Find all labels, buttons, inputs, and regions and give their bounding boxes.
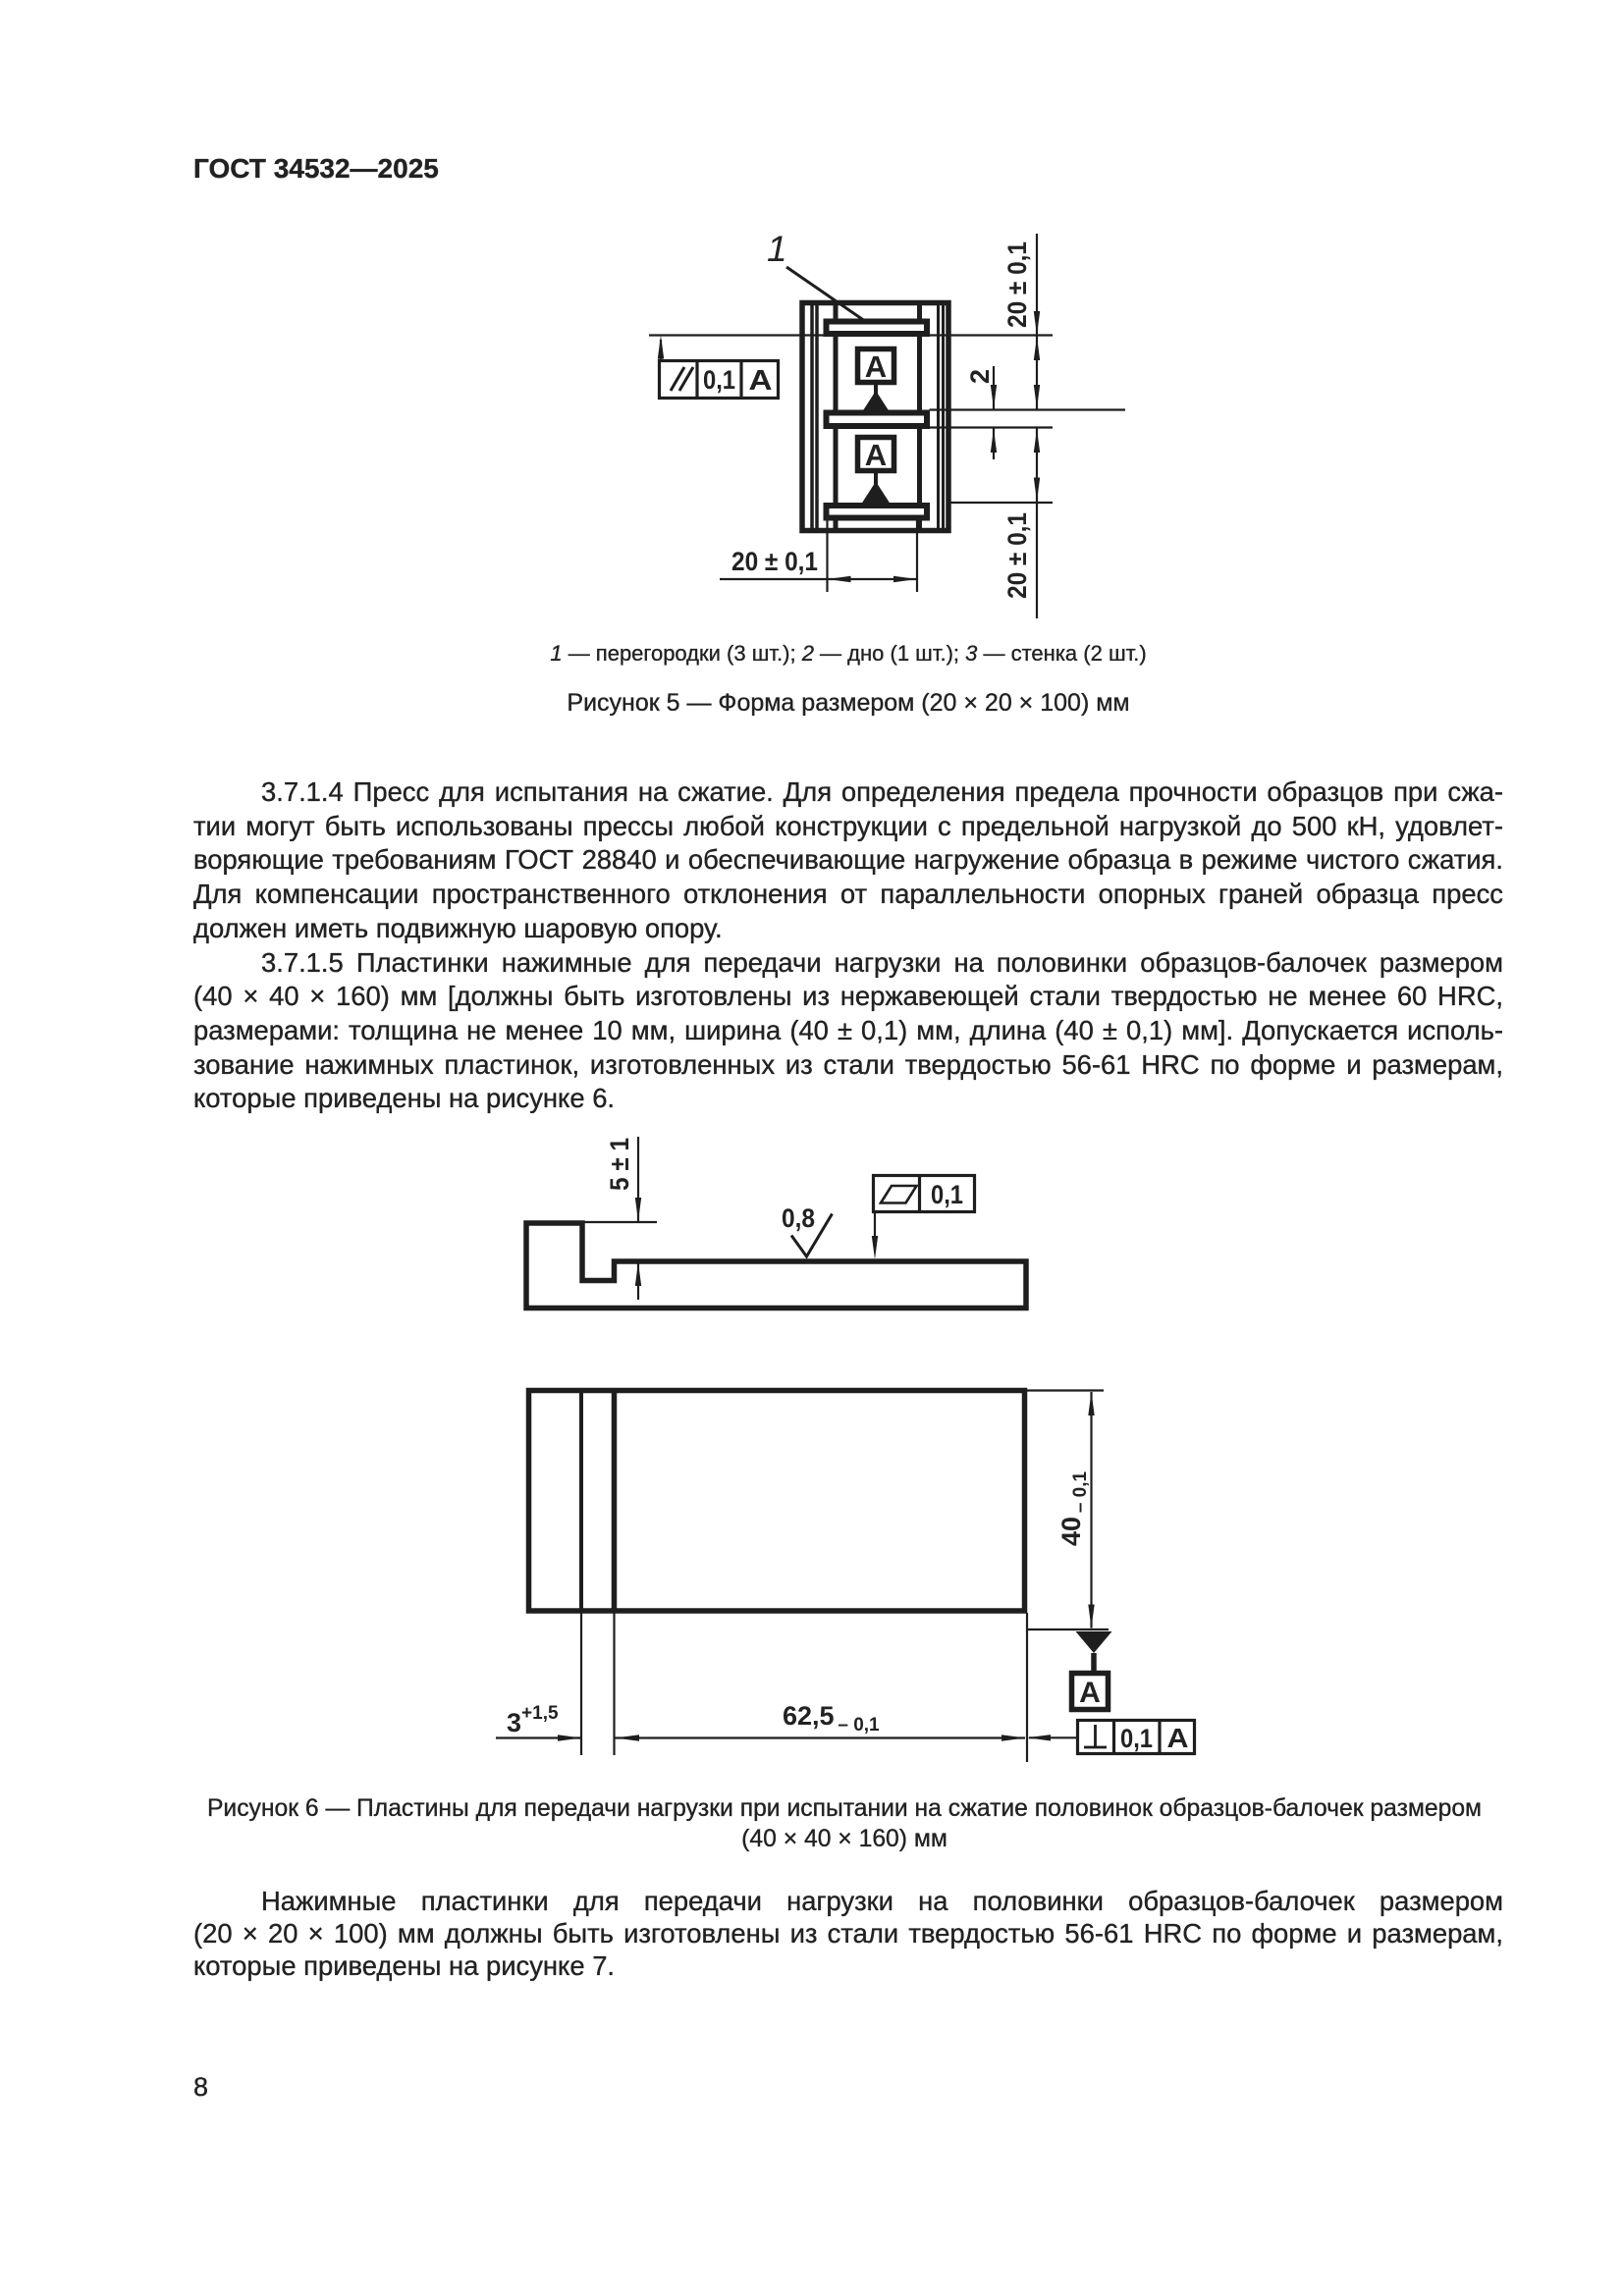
svg-text:А: А (865, 438, 887, 472)
svg-text:2: 2 (965, 369, 995, 384)
svg-text:3+1,5: 3+1,5 (507, 1703, 559, 1737)
svg-text:20 ± 0,1: 20 ± 0,1 (731, 547, 818, 576)
svg-text:0,1: 0,1 (931, 1180, 963, 1209)
svg-text:А: А (749, 365, 773, 397)
svg-text:0,1: 0,1 (1120, 1724, 1153, 1753)
svg-text:А: А (865, 349, 887, 384)
svg-text:40 – 0,1: 40 – 0,1 (1056, 1471, 1091, 1546)
svg-text:5 ± 1: 5 ± 1 (605, 1138, 634, 1191)
svg-text:20 ± 0,1: 20 ± 0,1 (1002, 241, 1032, 328)
svg-text:0,1: 0,1 (703, 365, 735, 395)
svg-text:А: А (1079, 1677, 1101, 1709)
svg-text:0,8: 0,8 (782, 1203, 815, 1233)
svg-text:62,5 – 0,1: 62,5 – 0,1 (783, 1701, 880, 1735)
svg-text:1: 1 (767, 229, 787, 269)
svg-text:А: А (1167, 1723, 1189, 1753)
svg-text:20 ± 0,1: 20 ± 0,1 (1002, 512, 1032, 599)
